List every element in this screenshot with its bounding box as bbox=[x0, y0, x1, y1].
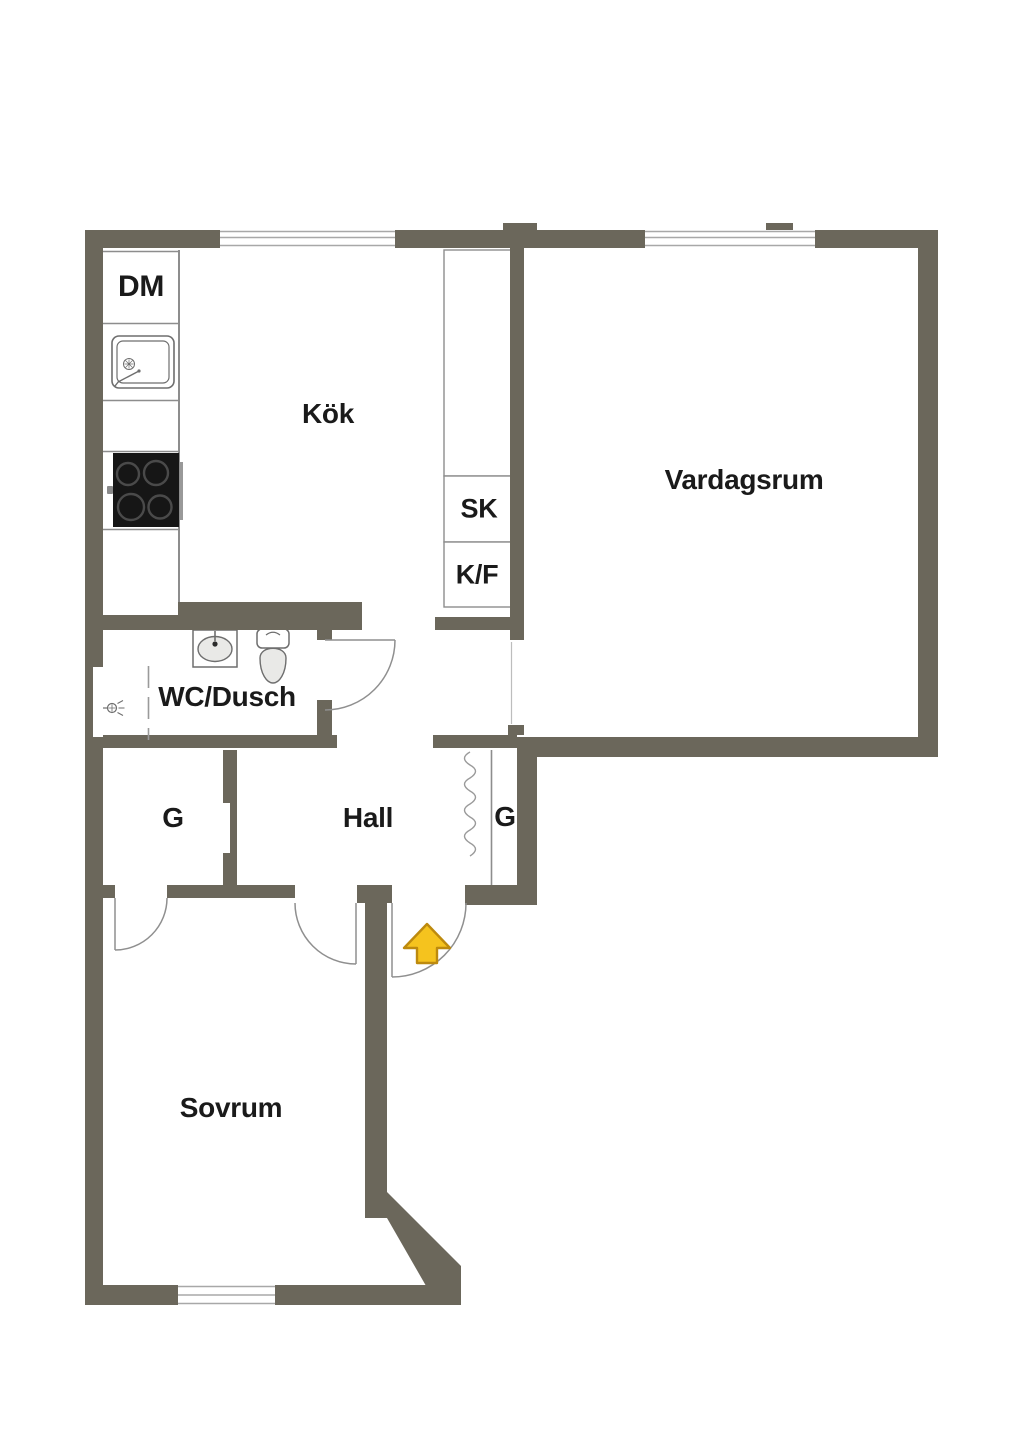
label-bathroom: WC/Dusch bbox=[158, 683, 296, 711]
kitchen-closet-column bbox=[444, 250, 512, 607]
door-wardrobe-left bbox=[115, 898, 167, 950]
floor-plan: DM Kök SK K/F Vardagsrum WC/Dusch G Hall… bbox=[0, 0, 1024, 1448]
label-hall: Hall bbox=[343, 804, 393, 832]
label-fridge-freezer: K/F bbox=[456, 562, 499, 589]
label-wardrobe-right: G bbox=[494, 803, 515, 831]
label-living-room: Vardagsrum bbox=[665, 466, 824, 494]
label-wardrobe-left: G bbox=[162, 804, 183, 832]
window-bedroom bbox=[178, 1285, 275, 1305]
curtain-icon bbox=[465, 752, 476, 856]
kitchen-counter bbox=[103, 248, 180, 617]
wash-basin-icon bbox=[193, 630, 237, 667]
toilet-icon bbox=[257, 629, 289, 683]
walls bbox=[85, 223, 938, 1305]
label-bedroom: Sovrum bbox=[180, 1094, 282, 1122]
stove-icon bbox=[107, 453, 183, 527]
shower-icon bbox=[101, 701, 125, 716]
door-bedroom bbox=[295, 903, 356, 964]
floor-plan-drawing bbox=[0, 0, 1024, 1448]
label-kitchen: Kök bbox=[302, 400, 354, 428]
kitchen-sink-icon bbox=[112, 336, 174, 388]
window-living-room bbox=[645, 230, 815, 248]
door-bathroom bbox=[325, 640, 395, 710]
window-kitchen bbox=[220, 230, 395, 248]
label-tall-closet: SK bbox=[461, 496, 498, 523]
label-dishwasher: DM bbox=[118, 272, 164, 302]
